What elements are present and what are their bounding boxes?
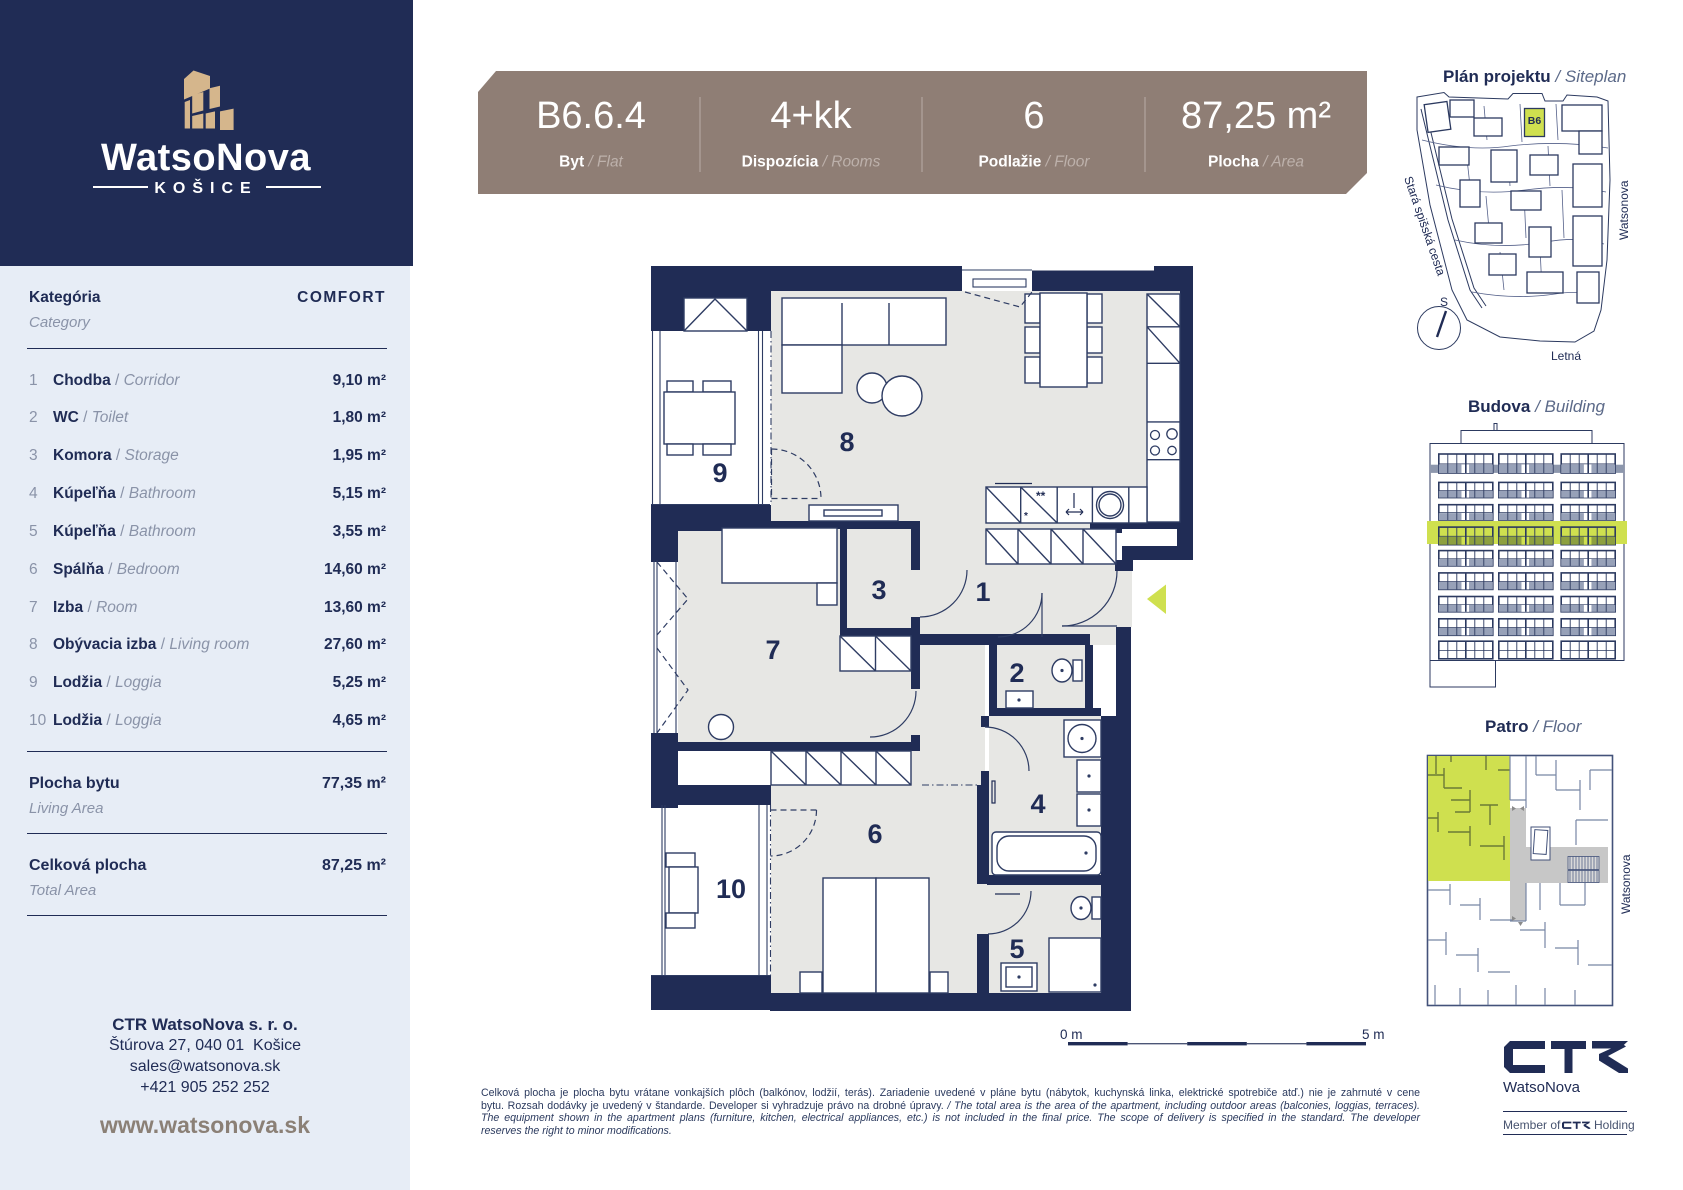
svg-text:KOŠICE: KOŠICE — [154, 178, 257, 197]
svg-text:5 m: 5 m — [1362, 1027, 1385, 1042]
svg-text:5: 5 — [1009, 934, 1024, 964]
svg-text:2: 2 — [1009, 658, 1024, 688]
svg-text:Plocha / Area: Plocha / Area — [1208, 154, 1304, 171]
svg-text:Dispozícia / Rooms: Dispozícia / Rooms — [742, 154, 881, 171]
svg-text:6: 6 — [1023, 95, 1044, 137]
svg-text:Podlažie / Floor: Podlažie / Floor — [978, 154, 1090, 171]
svg-text:4: 4 — [1030, 789, 1045, 819]
svg-text:Byt / Flat: Byt / Flat — [559, 154, 623, 171]
svg-text:Stará spišská cesta: Stará spišská cesta — [1401, 174, 1448, 277]
svg-text:Letná: Letná — [1551, 349, 1581, 363]
svg-text:WatsoNova: WatsoNova — [1503, 1079, 1581, 1096]
svg-text:B6.6.4: B6.6.4 — [536, 95, 646, 137]
svg-text:**: ** — [1036, 489, 1046, 503]
svg-text:6: 6 — [867, 819, 882, 849]
svg-text:S: S — [1440, 295, 1448, 309]
svg-text:Member of: Member of — [1503, 1118, 1561, 1132]
svg-text:7: 7 — [765, 635, 780, 665]
svg-text:Watsonova: Watsonova — [1619, 854, 1633, 914]
svg-text:87,25 m²: 87,25 m² — [1181, 95, 1331, 137]
svg-text:Budova / Building: Budova / Building — [1468, 397, 1606, 416]
svg-text:B6: B6 — [1528, 115, 1542, 127]
svg-text:4+kk: 4+kk — [770, 95, 852, 137]
svg-text:10: 10 — [716, 874, 746, 904]
svg-text:*: * — [1024, 511, 1028, 522]
svg-text:Holding: Holding — [1594, 1118, 1635, 1132]
svg-text:8: 8 — [839, 427, 854, 457]
svg-text:9: 9 — [712, 458, 727, 488]
svg-text:Watsonova: Watsonova — [1617, 180, 1631, 240]
svg-text:WatsoNova: WatsoNova — [101, 137, 311, 179]
svg-text:1: 1 — [975, 577, 990, 607]
svg-text:3: 3 — [871, 575, 886, 605]
svg-text:Patro / Floor: Patro / Floor — [1485, 717, 1583, 736]
svg-text:Plán projektu / Siteplan: Plán projektu / Siteplan — [1443, 67, 1626, 86]
svg-text:0 m: 0 m — [1060, 1027, 1083, 1042]
